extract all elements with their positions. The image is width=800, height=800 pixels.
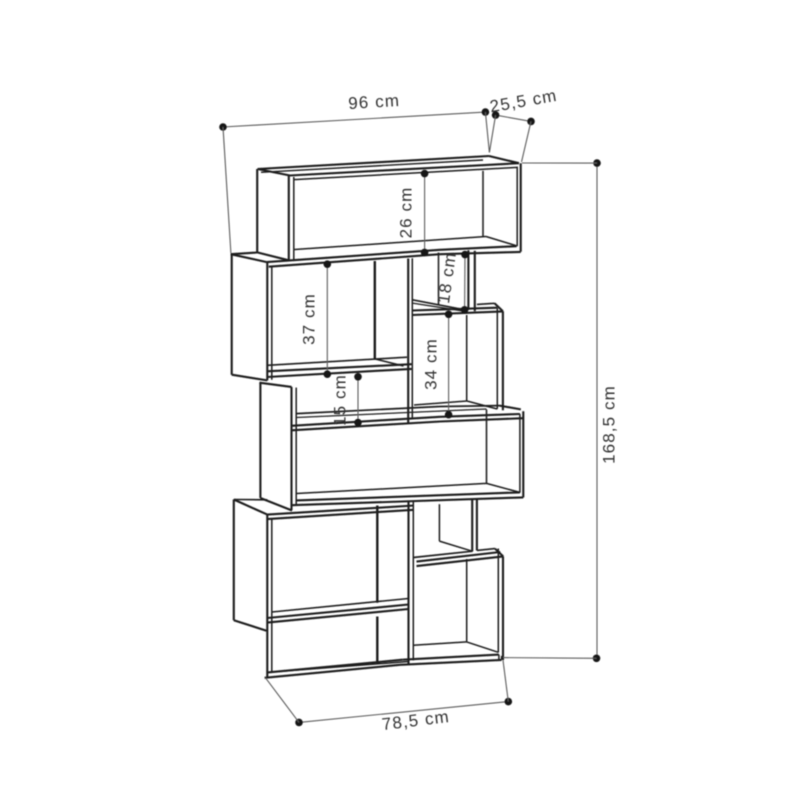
svg-text:96 cm: 96 cm — [348, 91, 401, 113]
svg-text:168,5 cm: 168,5 cm — [600, 385, 619, 464]
svg-text:15 cm: 15 cm — [331, 374, 350, 426]
svg-text:26 cm: 26 cm — [397, 187, 416, 239]
svg-text:37 cm: 37 cm — [300, 293, 319, 345]
svg-text:34 cm: 34 cm — [422, 338, 441, 390]
